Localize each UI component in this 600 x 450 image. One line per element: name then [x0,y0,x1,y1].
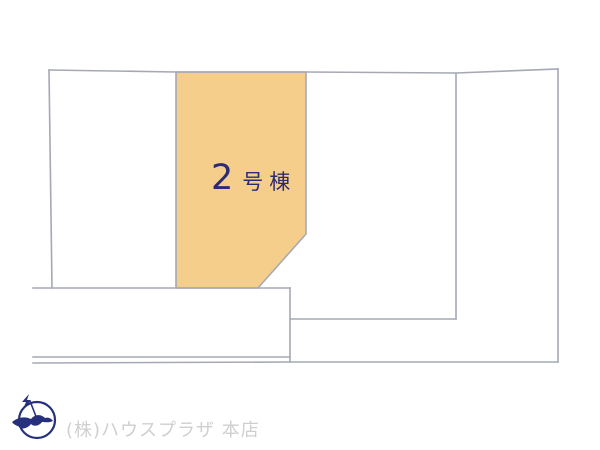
site-plan-drawing [0,0,600,450]
compass-bird-logo-icon [12,392,60,444]
plot-label: 2 号棟 [211,161,296,196]
plot-number: 2 [211,161,233,196]
boundary-bottom [33,362,558,363]
company-watermark-text: (株)ハウスプラザ 本店 [66,416,260,442]
watermark-footer: (株)ハウスプラザ 本店 [12,392,260,444]
boundary-left [49,70,52,288]
boundary-top [49,69,558,73]
site-plan-canvas: 2 号棟 (株)ハウスプラザ 本店 [0,0,600,450]
plot-suffix: 号棟 [242,172,296,193]
